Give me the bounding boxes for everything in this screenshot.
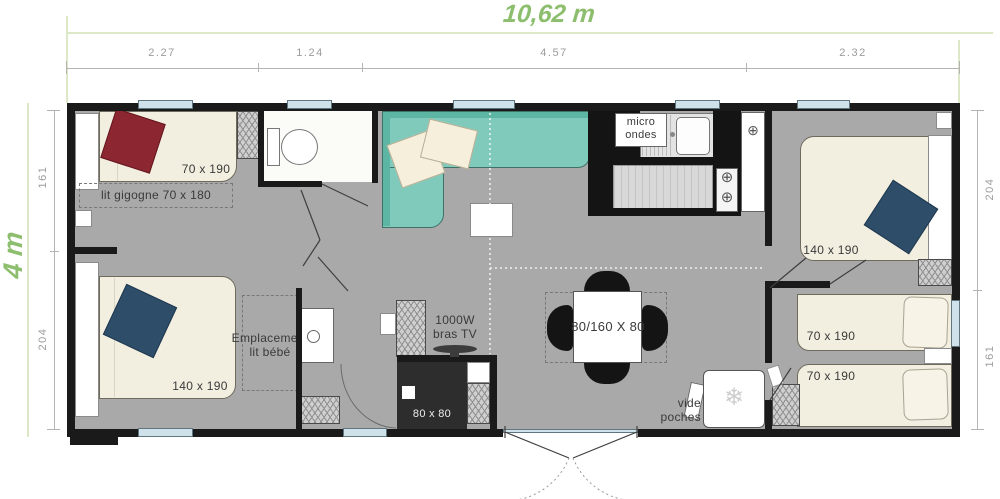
plan-lines-overlay xyxy=(0,0,1000,499)
tv-icon xyxy=(433,345,477,357)
bathroom-door-arc xyxy=(341,364,396,428)
floor-plan-canvas: 10,62 m 4 m 2.27 1.24 4.57 2.32 161 204 … xyxy=(0,0,1000,499)
zone-divider-dotted xyxy=(490,113,764,354)
door-leaf-lines xyxy=(301,184,866,458)
door-swing-arcs xyxy=(505,458,637,499)
